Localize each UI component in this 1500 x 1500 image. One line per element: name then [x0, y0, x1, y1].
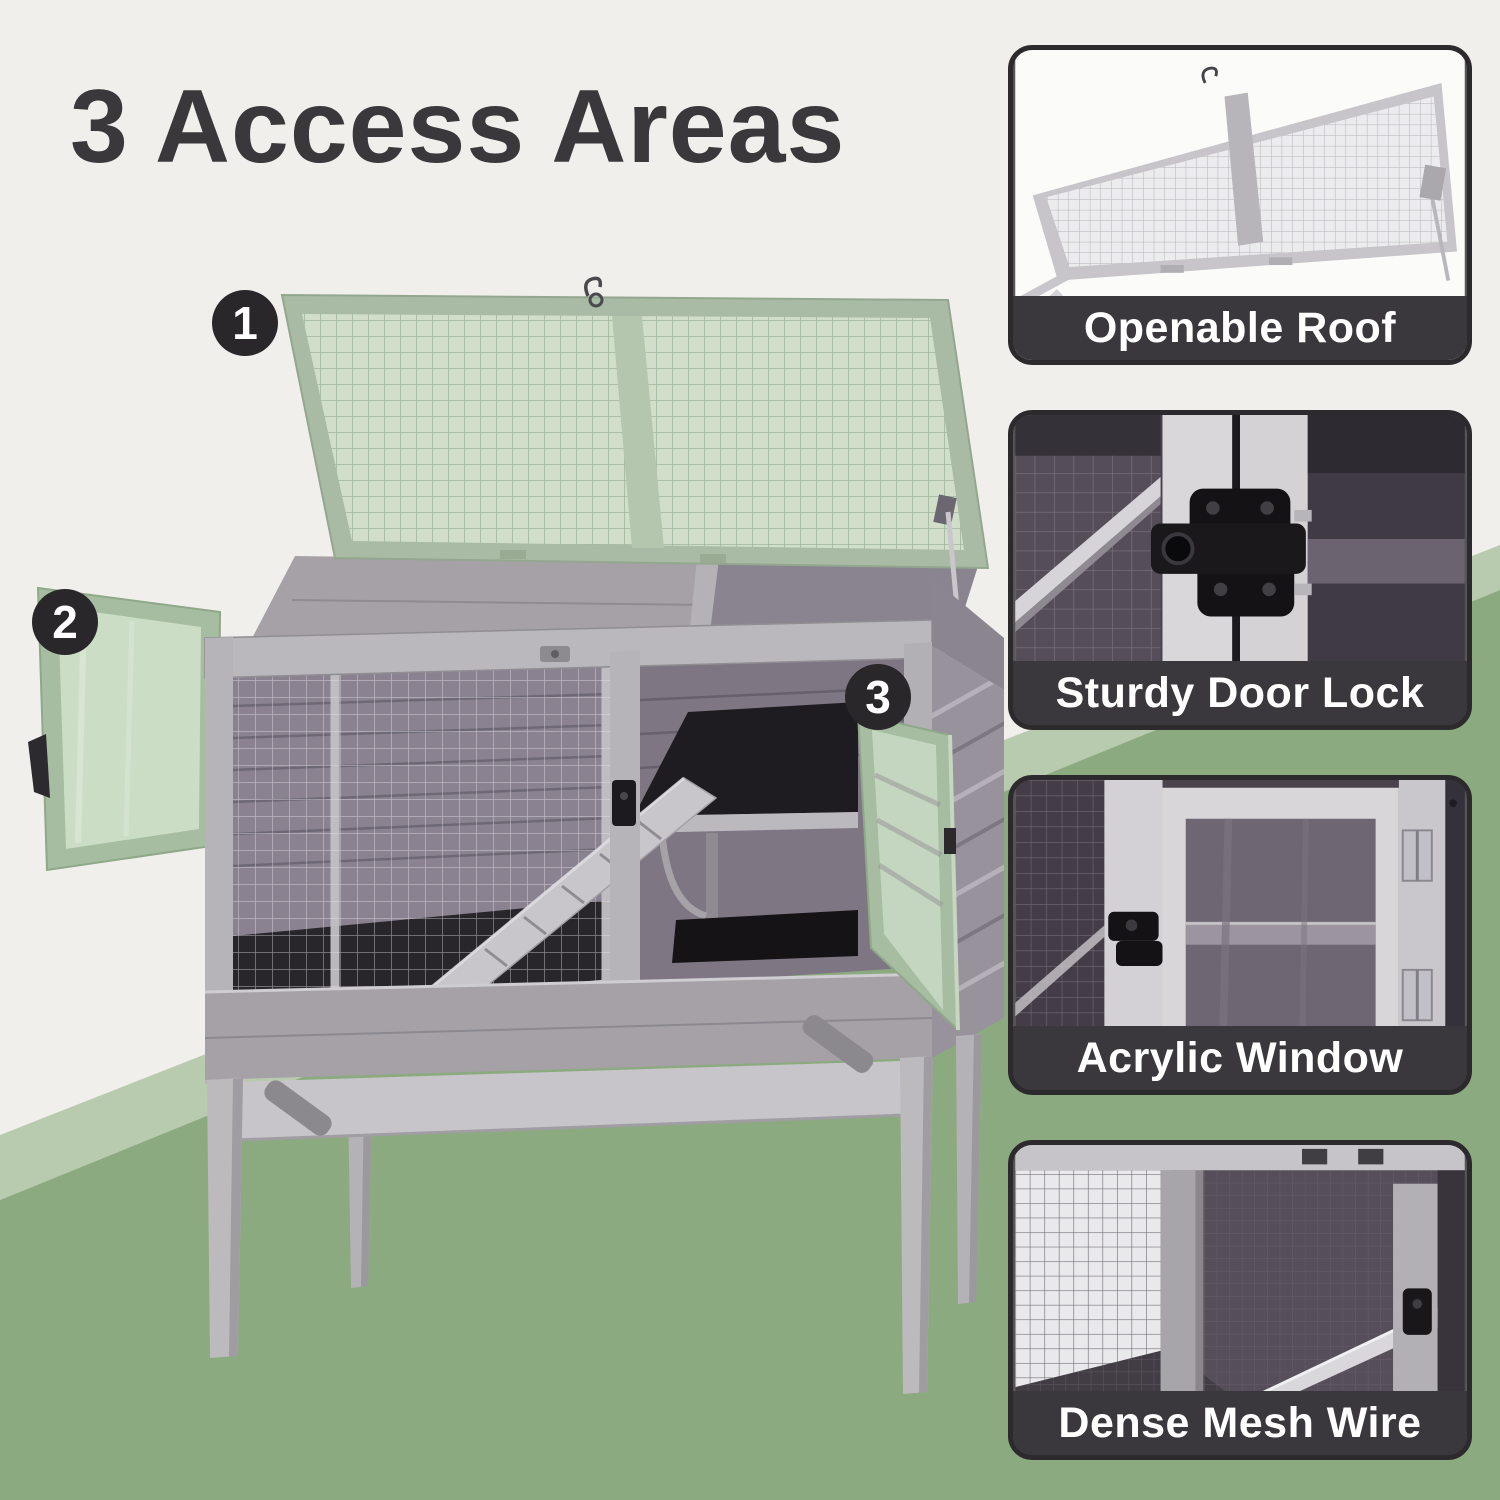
feature-panel-dense-mesh-wire: Dense Mesh Wire: [1008, 1140, 1472, 1460]
callout-badge-1: 1: [212, 290, 278, 356]
page-title: 3 Access Areas: [70, 70, 845, 184]
feature-panel-openable-roof: Openable Roof: [1008, 45, 1472, 365]
callout-number: 2: [52, 595, 78, 649]
feature-panels: Openable Roof: [1008, 0, 1472, 1500]
openable-roof-lid: [282, 278, 988, 568]
panel-caption: Dense Mesh Wire: [1013, 1391, 1467, 1455]
panel-caption: Acrylic Window: [1013, 1026, 1467, 1090]
product-infographic: 3 Access Areas 1 2 3: [0, 0, 1500, 1500]
callout-number: 3: [865, 670, 891, 724]
callout-number: 1: [232, 296, 258, 350]
feature-panel-sturdy-door-lock: Sturdy Door Lock: [1008, 410, 1472, 730]
feature-panel-acrylic-window: Acrylic Window: [1008, 775, 1472, 1095]
interior-left-section: [230, 650, 615, 1020]
callout-badge-2: 2: [32, 589, 98, 655]
callout-badge-3: 3: [845, 664, 911, 730]
panel-caption: Sturdy Door Lock: [1013, 661, 1467, 725]
panel-caption: Openable Roof: [1013, 296, 1467, 360]
